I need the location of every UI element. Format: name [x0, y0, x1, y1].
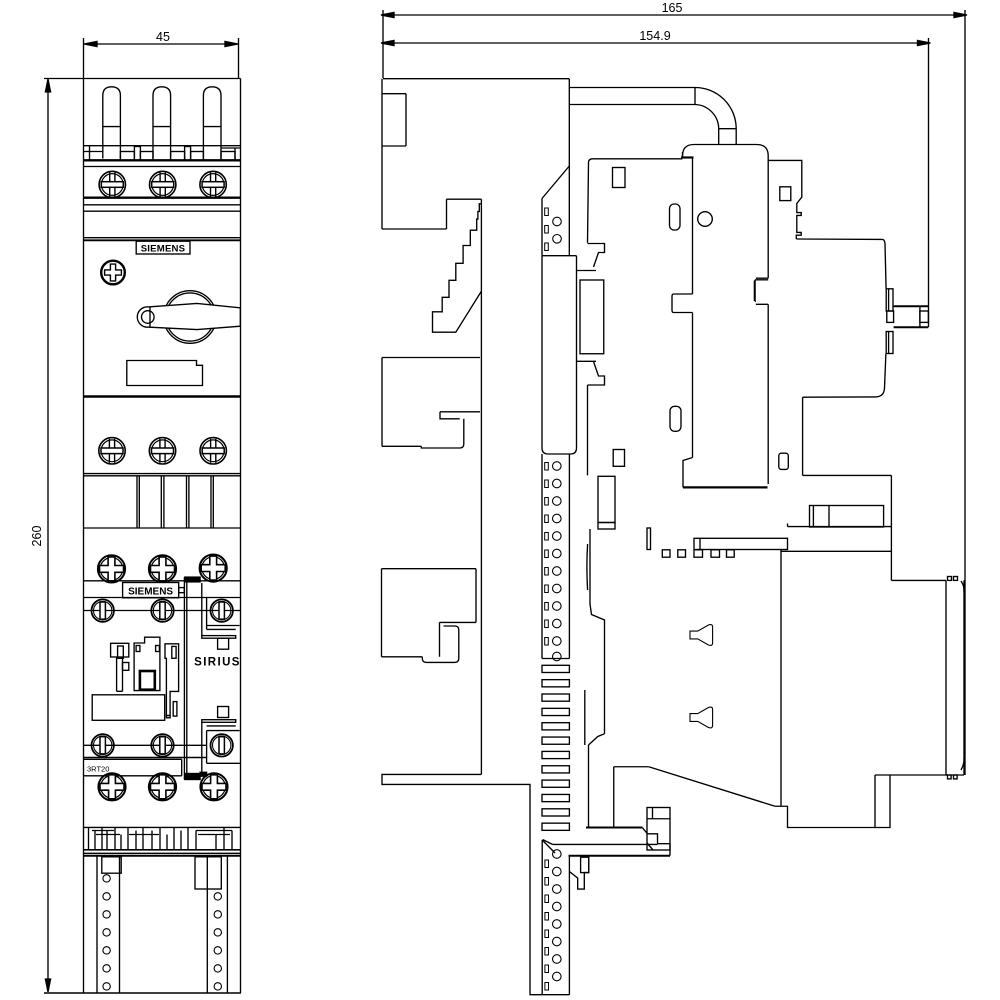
- svg-text:SIEMENS: SIEMENS: [141, 243, 186, 254]
- svg-text:SIEMENS: SIEMENS: [128, 587, 173, 598]
- svg-text:45: 45: [156, 30, 170, 44]
- svg-text:154.9: 154.9: [639, 29, 670, 43]
- svg-text:3RT20: 3RT20: [87, 765, 109, 774]
- svg-text:165: 165: [662, 1, 683, 15]
- svg-text:260: 260: [30, 526, 44, 547]
- svg-text:SIRIUS: SIRIUS: [194, 657, 241, 669]
